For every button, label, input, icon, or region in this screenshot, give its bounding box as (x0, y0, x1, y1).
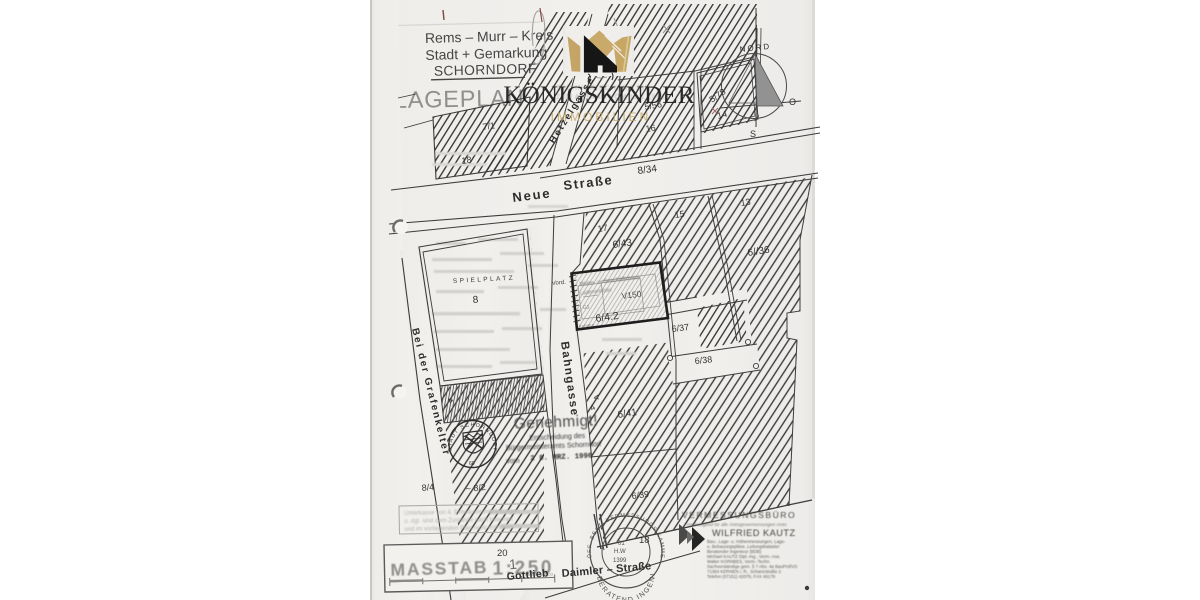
svg-text:~ 8/2: ~ 8/2 (465, 482, 486, 494)
svg-text:Vord.: Vord. (552, 280, 567, 287)
svg-text:S: S (750, 129, 756, 139)
svg-text:6/38: 6/38 (694, 354, 712, 366)
svg-text:6/39: 6/39 (631, 489, 650, 501)
svg-text:18: 18 (461, 155, 472, 166)
svg-text:13: 13 (740, 197, 751, 208)
svg-text:O: O (789, 97, 796, 107)
svg-text:60: 60 (469, 461, 475, 467)
svg-text:MASSTAB: MASSTAB (390, 557, 488, 580)
svg-text:6/37: 6/37 (671, 322, 690, 334)
svg-text:G1: G1 (583, 304, 591, 311)
svg-text:vom: vom (506, 458, 520, 466)
svg-text:15: 15 (674, 209, 685, 220)
svg-text:VERMESSUNGSBÜRO: VERMESSUNGSBÜRO (682, 510, 796, 520)
svg-text:KÖNIGSKINDER: KÖNIGSKINDER (503, 82, 694, 109)
svg-text:16: 16 (645, 123, 656, 134)
svg-text:01: 01 (618, 541, 625, 547)
svg-text:IMMOBILIEN: IMMOBILIEN (551, 110, 652, 124)
svg-text:Telefon (07151) 42079, FAX 461: Telefon (07151) 42079, FAX 46179 (707, 574, 776, 579)
svg-text:nachsolgend für alle Antragsve: nachsolgend für alle Antragsvermessungen… (687, 522, 787, 527)
svg-text:H.W: H.W (614, 549, 626, 555)
svg-text:SCHORNDORF: SCHORNDORF (434, 61, 537, 79)
svg-text:Stadt + Gemarkung: Stadt + Gemarkung (425, 44, 547, 63)
svg-text:8/4: 8/4 (421, 482, 434, 493)
svg-text:7/1: 7/1 (482, 120, 496, 132)
svg-text:17: 17 (597, 223, 608, 234)
svg-text:20: 20 (497, 548, 508, 559)
svg-text:WILFRIED KAUTZ: WILFRIED KAUTZ (712, 528, 796, 538)
svg-text:Rems – Murr – Kreis: Rems – Murr – Kreis (425, 27, 554, 46)
